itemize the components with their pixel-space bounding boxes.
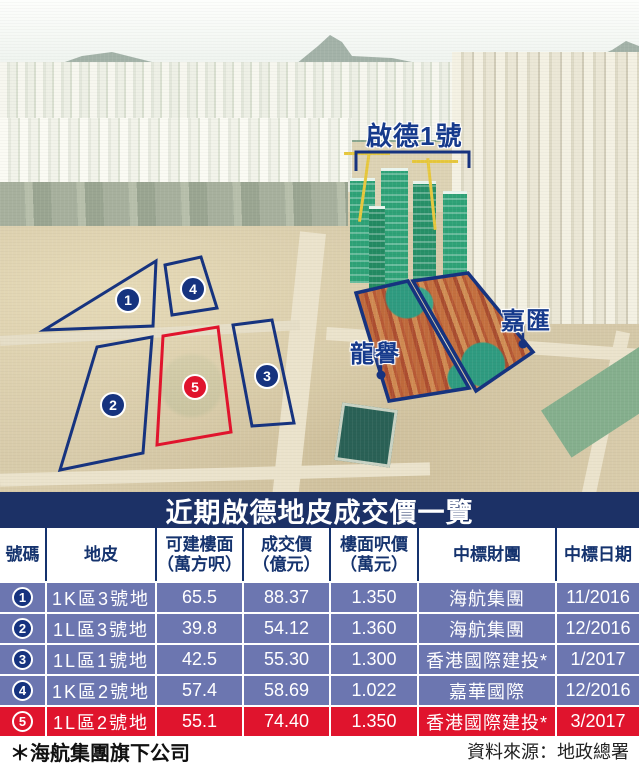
- cell-site: 1L區2號地: [47, 707, 157, 736]
- table-title-bar: 近期啟德地皮成交價一覽: [0, 492, 639, 528]
- table-header: 號碼 地皮 可建樓面（萬方呎） 成交價（億元） 樓面呎價（萬元） 中標財團 中標…: [0, 528, 639, 581]
- data-source: 資料來源：地政總署: [467, 738, 629, 764]
- cell-price: 54.12: [244, 614, 331, 643]
- land-price-table: 號碼 地皮 可建樓面（萬方呎） 成交價（億元） 樓面呎價（萬元） 中標財團 中標…: [0, 528, 639, 736]
- cell-date: 12/2016: [557, 614, 639, 643]
- cell-number: 4: [0, 676, 47, 705]
- table-row-2: 2 1L區3號地 39.8 54.12 1.360 海航集團 12/2016: [0, 612, 639, 643]
- cell-number: 1: [0, 583, 47, 612]
- cell-unit-price: 1.300: [331, 645, 419, 674]
- plot-marker-3: 3: [254, 363, 280, 389]
- label-lung-yue: 龍譽: [350, 334, 400, 369]
- cell-winner: 海航集團: [419, 583, 557, 612]
- col-header-unit-price: 樓面呎價（萬元）: [331, 528, 419, 581]
- cell-price: 74.40: [244, 707, 331, 736]
- cell-price: 58.69: [244, 676, 331, 705]
- col-header-price: 成交價（億元）: [244, 528, 331, 581]
- label-kai-tak-1: 啟德1號: [366, 116, 462, 153]
- table-row-5-highlighted: 5 1L區2號地 55.1 74.40 1.350 香港國際建投* 3/2017: [0, 705, 639, 736]
- plot-outlines: [0, 0, 639, 492]
- cell-gfa: 55.1: [157, 707, 244, 736]
- cell-site: 1K區2號地: [47, 676, 157, 705]
- cell-price: 88.37: [244, 583, 331, 612]
- cell-gfa: 57.4: [157, 676, 244, 705]
- plot-marker-5: 5: [182, 374, 208, 400]
- cell-date: 1/2017: [557, 645, 639, 674]
- plot-marker-1: 1: [115, 287, 141, 313]
- cell-number: 5: [0, 707, 47, 736]
- cell-site: 1K區3號地: [47, 583, 157, 612]
- cell-site: 1L區3號地: [47, 614, 157, 643]
- col-header-gfa: 可建樓面（萬方呎）: [157, 528, 244, 581]
- cell-gfa: 65.5: [157, 583, 244, 612]
- cell-site: 1L區1號地: [47, 645, 157, 674]
- cell-date: 12/2016: [557, 676, 639, 705]
- cell-number: 3: [0, 645, 47, 674]
- cell-date: 11/2016: [557, 583, 639, 612]
- col-header-date: 中標日期: [557, 528, 639, 581]
- cell-unit-price: 1.360: [331, 614, 419, 643]
- cell-price: 55.30: [244, 645, 331, 674]
- col-header-number: 號碼: [0, 528, 47, 581]
- cell-unit-price: 1.350: [331, 583, 419, 612]
- cell-winner: 香港國際建投*: [419, 645, 557, 674]
- cell-winner: 香港國際建投*: [419, 707, 557, 736]
- cell-number: 2: [0, 614, 47, 643]
- cell-winner: 海航集團: [419, 614, 557, 643]
- table-row-3: 3 1L區1號地 42.5 55.30 1.300 香港國際建投* 1/2017: [0, 643, 639, 674]
- plot-marker-2: 2: [100, 392, 126, 418]
- table-row-4: 4 1K區2號地 57.4 58.69 1.022 嘉華國際 12/2016: [0, 674, 639, 705]
- col-header-winner: 中標財團: [419, 528, 557, 581]
- cell-winner: 嘉華國際: [419, 676, 557, 705]
- aerial-photo: 啟德1號 龍譽 嘉匯 1 2 3 4 5: [0, 0, 639, 492]
- footer: ＊海航集團旗下公司 資料來源：地政總署: [10, 737, 629, 765]
- cell-gfa: 39.8: [157, 614, 244, 643]
- table-row-1: 1 1K區3號地 65.5 88.37 1.350 海航集團 11/2016: [0, 581, 639, 612]
- cell-gfa: 42.5: [157, 645, 244, 674]
- label-ka-wai: 嘉匯: [501, 301, 551, 336]
- cell-unit-price: 1.350: [331, 707, 419, 736]
- plot-marker-4: 4: [180, 276, 206, 302]
- table-title: 近期啟德地皮成交價一覽: [166, 491, 474, 530]
- footnote: ＊海航集團旗下公司: [10, 737, 190, 766]
- col-header-site: 地皮: [47, 528, 157, 581]
- infographic-page: 啟德1號 龍譽 嘉匯 1 2 3 4 5 近期啟德地皮成交價一覽 號碼 地皮 可…: [0, 0, 639, 767]
- cell-date: 3/2017: [557, 707, 639, 736]
- cell-unit-price: 1.022: [331, 676, 419, 705]
